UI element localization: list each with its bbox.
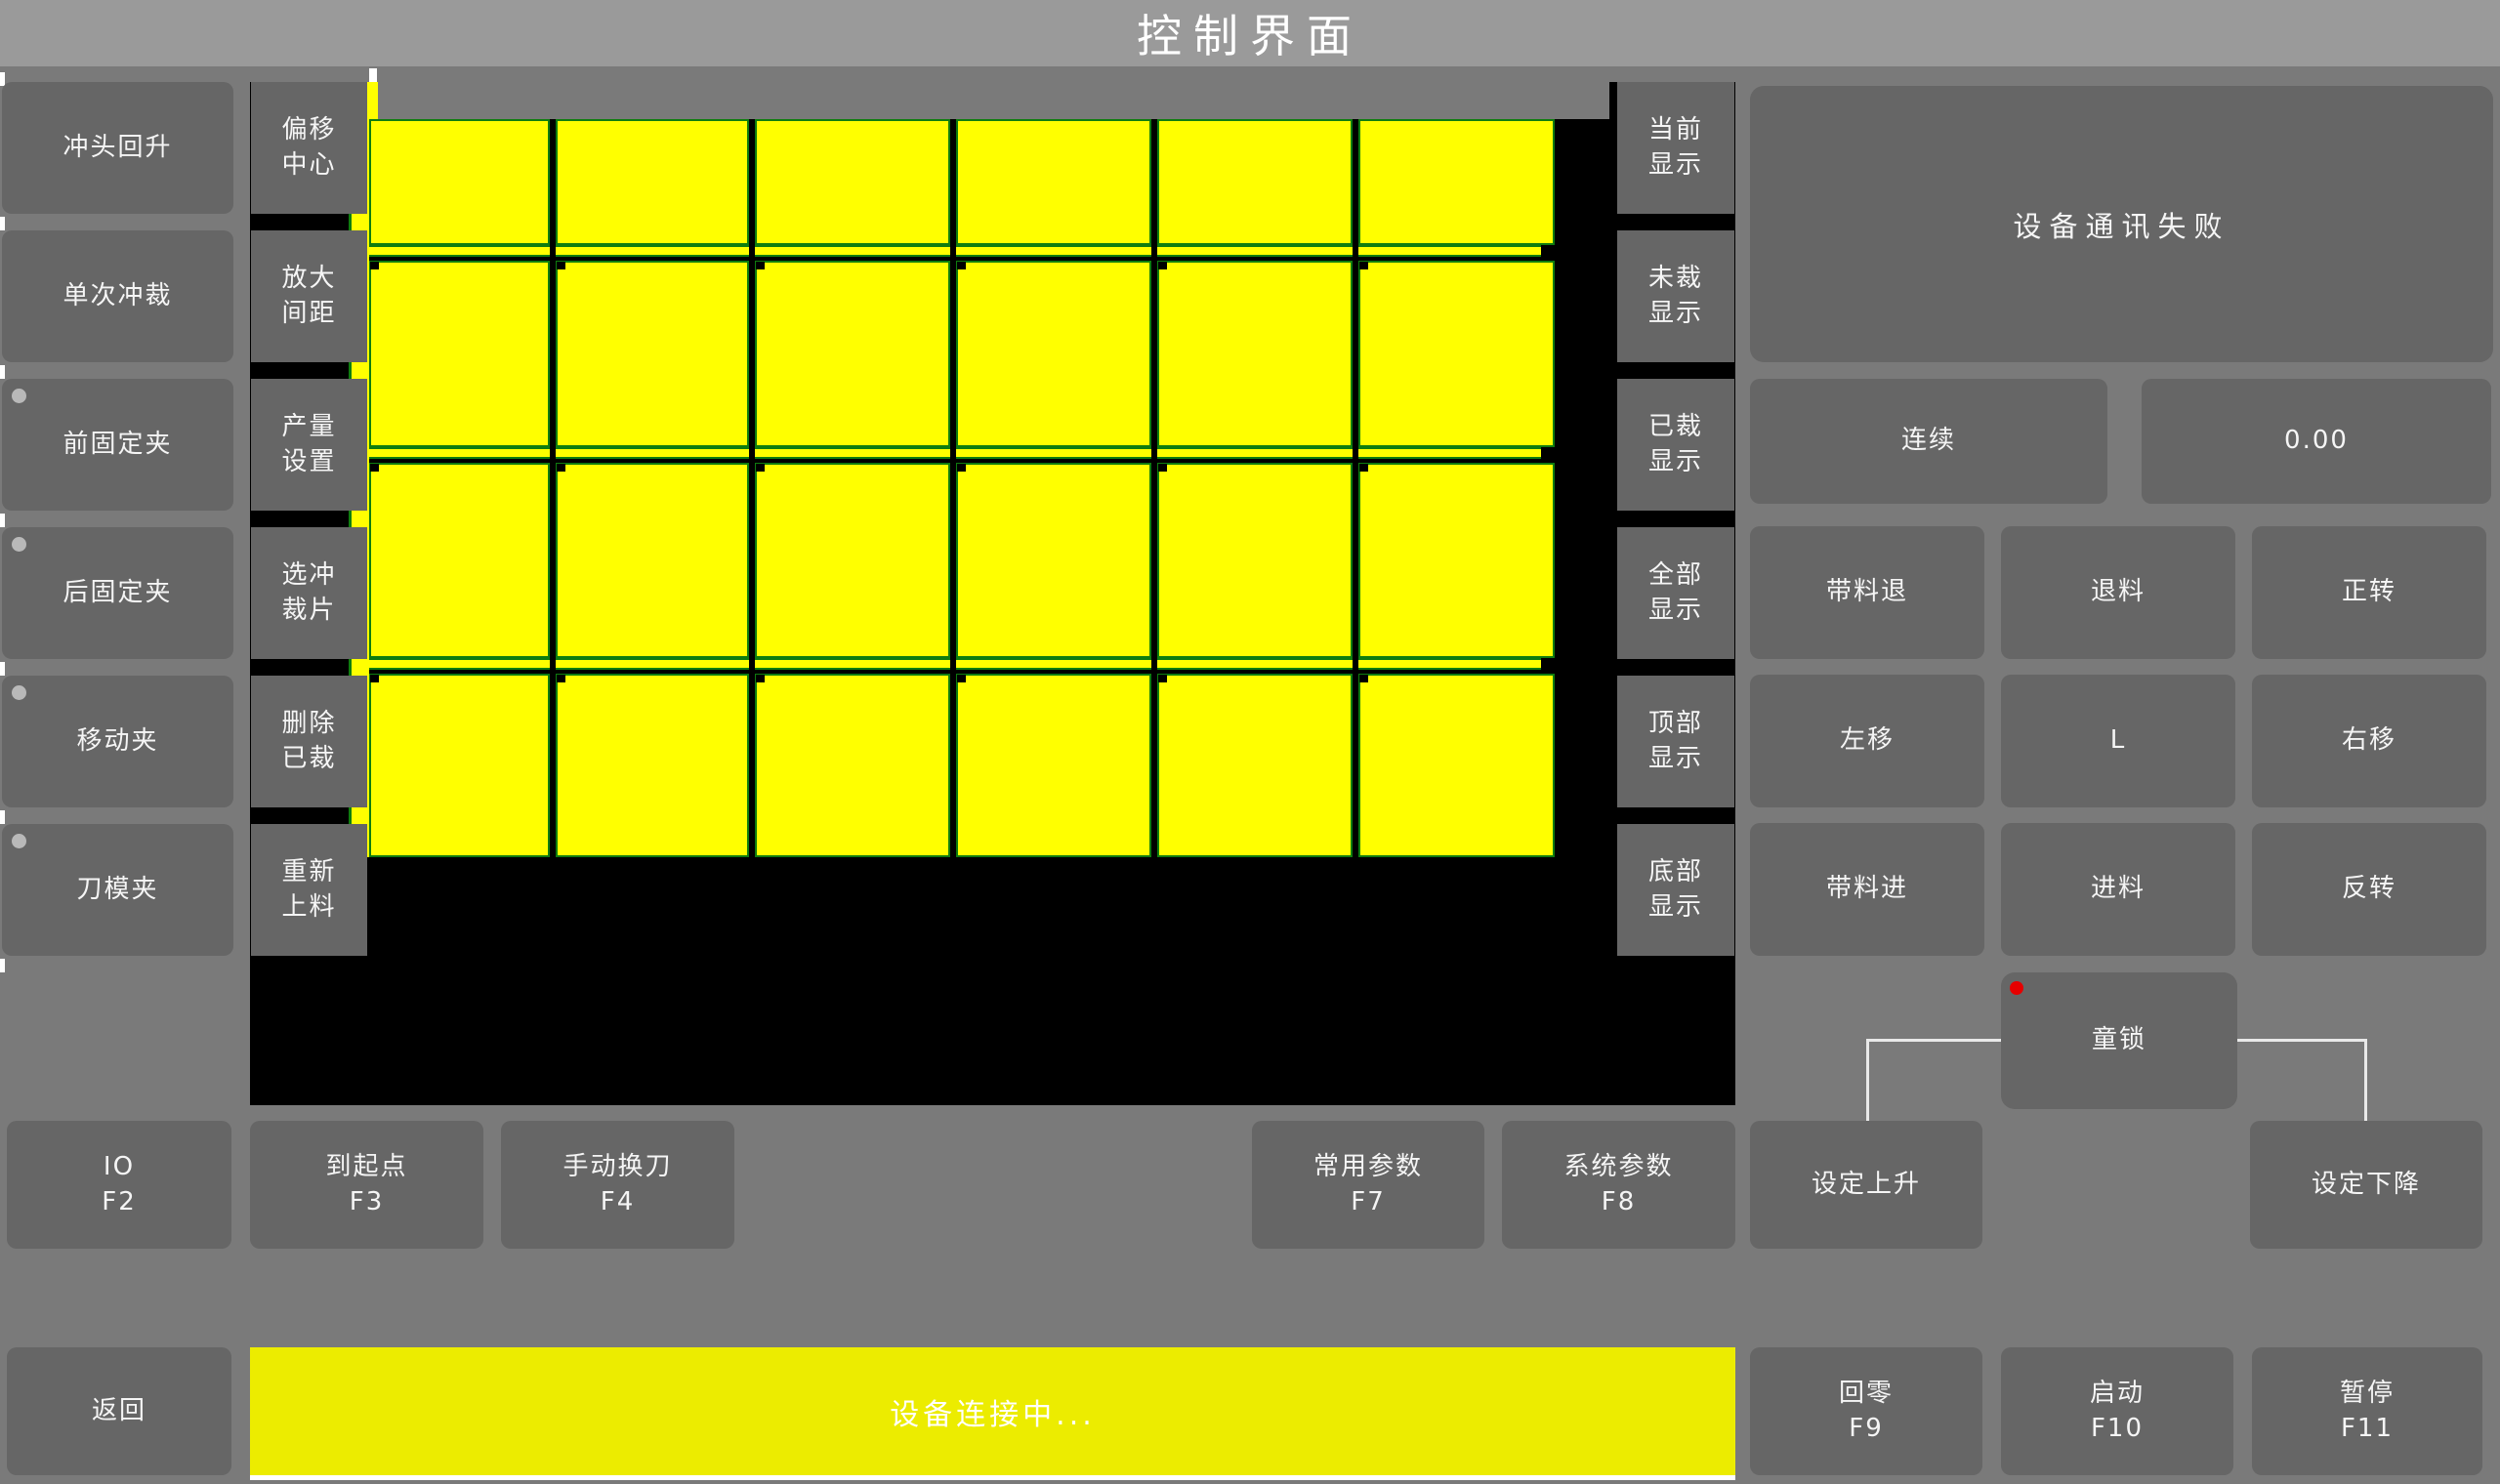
sheet-piece[interactable] <box>369 674 550 857</box>
select-piece-button[interactable]: 选冲 裁片 <box>251 527 367 659</box>
button-label: 间距 <box>281 297 336 331</box>
reverse-rotate-button[interactable]: 反转 <box>2252 823 2486 956</box>
skeleton-band <box>956 447 1151 459</box>
fkey-label: F7 <box>1351 1185 1386 1219</box>
skeleton-band <box>556 447 749 459</box>
button-label: 设定上升 <box>1812 1168 1921 1202</box>
skeleton-band <box>956 245 1151 257</box>
connector-line <box>1866 1039 2001 1042</box>
to-origin-f3-button[interactable]: 到起点 F3 <box>250 1121 483 1249</box>
button-label: 系统参数 <box>1563 1150 1673 1184</box>
button-label: 显示 <box>1648 148 1703 183</box>
skeleton-band <box>755 447 950 459</box>
sheet-piece[interactable] <box>956 674 1151 857</box>
left-edge-tick <box>0 365 5 379</box>
fkey-label: F2 <box>102 1185 137 1219</box>
button-label: 反转 <box>2342 872 2396 906</box>
button-label: 移动夹 <box>76 724 158 759</box>
alarm-message-box: 设备通讯失败 <box>1750 86 2493 362</box>
moving-clamp-button[interactable]: 移动夹 <box>2 676 233 807</box>
button-label: 顶部 <box>1648 707 1703 741</box>
sheet-piece[interactable] <box>755 119 950 245</box>
fkey-label: F3 <box>350 1185 385 1219</box>
sheet-piece[interactable] <box>1358 261 1555 447</box>
button-label: L <box>2110 723 2127 758</box>
left-edge-tick <box>0 514 5 527</box>
continuous-mode-button[interactable]: 连续 <box>1750 379 2107 504</box>
sheet-piece[interactable] <box>1358 674 1555 857</box>
button-label: 显示 <box>1648 742 1703 776</box>
button-label: 回零 <box>1839 1377 1894 1411</box>
button-label: 产量 <box>281 410 336 444</box>
button-label: 后固定夹 <box>62 576 172 610</box>
sheet-piece[interactable] <box>556 261 749 447</box>
sheet-piece[interactable] <box>369 261 550 447</box>
sheet-piece[interactable] <box>755 261 950 447</box>
sheet-piece[interactable] <box>956 119 1151 245</box>
status-indicator-dot <box>12 685 26 700</box>
connection-status-text: 设备连接中... <box>890 1390 1096 1433</box>
button-label: 放大 <box>281 262 336 296</box>
reload-material-button[interactable]: 重新 上料 <box>251 824 367 956</box>
left-edge-tick <box>0 662 5 676</box>
button-label: 当前 <box>1648 113 1703 147</box>
skeleton-band <box>369 658 550 670</box>
l-button[interactable]: L <box>2001 675 2235 807</box>
button-label: 显示 <box>1648 890 1703 925</box>
sheet-piece[interactable] <box>369 119 550 245</box>
front-clamp-button[interactable]: 前固定夹 <box>2 379 233 511</box>
bottom-display-button[interactable]: 底部 显示 <box>1617 824 1734 956</box>
strip-back-button[interactable]: 带料退 <box>1750 526 1984 659</box>
button-label: 退料 <box>2091 575 2146 609</box>
button-label: IO <box>104 1150 135 1184</box>
button-label: 单次冲裁 <box>62 279 172 313</box>
strip-feed-button[interactable]: 带料进 <box>1750 823 1984 956</box>
skeleton-band <box>1358 245 1541 257</box>
button-label: 显示 <box>1648 297 1703 331</box>
skeleton-band <box>1358 658 1541 670</box>
feed-button[interactable]: 进料 <box>2001 823 2235 956</box>
sheet-piece[interactable] <box>556 463 749 658</box>
button-label: 全部 <box>1648 558 1703 593</box>
fkey-label: F9 <box>1849 1412 1884 1446</box>
single-punch-button[interactable]: 单次冲裁 <box>2 230 233 362</box>
button-label: 重新 <box>281 855 336 889</box>
system-params-f8-button[interactable]: 系统参数 F8 <box>1502 1121 1735 1249</box>
sheet-piece[interactable] <box>1157 463 1353 658</box>
skeleton-band <box>1157 447 1353 459</box>
start-f10-button[interactable]: 启动 F10 <box>2001 1347 2233 1475</box>
punch-return-button[interactable]: 冲头回升 <box>2 82 233 214</box>
skeleton-band <box>1157 658 1353 670</box>
button-label: 暂停 <box>2340 1377 2395 1411</box>
pause-f11-button[interactable]: 暂停 F11 <box>2252 1347 2482 1475</box>
connection-status-bar: 设备连接中... <box>250 1347 1735 1475</box>
button-label: 偏移 <box>281 113 336 147</box>
status-indicator-dot <box>12 537 26 552</box>
button-label: 返回 <box>92 1394 146 1428</box>
button-label: 到起点 <box>325 1150 407 1184</box>
skeleton-band <box>1157 245 1353 257</box>
button-label: 已裁 <box>1648 410 1703 444</box>
skeleton-band <box>1358 447 1541 459</box>
button-label: 显示 <box>1648 594 1703 628</box>
button-label: 连续 <box>1901 424 1956 458</box>
alarm-message-text: 设备通讯失败 <box>2013 204 2229 245</box>
fkey-label: F8 <box>1602 1185 1637 1219</box>
sheet-piece[interactable] <box>755 674 950 857</box>
common-params-f7-button[interactable]: 常用参数 F7 <box>1252 1121 1484 1249</box>
button-label: 显示 <box>1648 445 1703 479</box>
button-label: 中心 <box>281 148 336 183</box>
fkey-label: F10 <box>2091 1412 2144 1446</box>
button-label: 带料退 <box>1826 575 1908 609</box>
left-edge-tick <box>0 217 5 230</box>
connector-line <box>1866 1039 1869 1121</box>
set-rise-button[interactable]: 设定上升 <box>1750 1121 1982 1249</box>
delete-cut-button[interactable]: 删除 已裁 <box>251 676 367 807</box>
button-label: 进料 <box>2091 872 2146 906</box>
offset-center-button[interactable]: 偏移 中心 <box>251 82 367 214</box>
sheet-piece[interactable] <box>1157 119 1353 245</box>
status-indicator-dot <box>12 389 26 403</box>
canvas-bottom-region <box>250 857 1735 1105</box>
status-indicator-dot <box>12 834 26 848</box>
button-label: 正转 <box>2342 575 2396 609</box>
sheet-piece[interactable] <box>1358 463 1555 658</box>
button-label: 设置 <box>281 445 336 479</box>
button-label: 设定下降 <box>2312 1168 2421 1202</box>
child-lock-indicator-dot <box>2010 981 2023 995</box>
button-label: 上料 <box>281 890 336 925</box>
sheet-piece[interactable] <box>556 674 749 857</box>
button-label: 选冲 <box>281 558 336 593</box>
button-label: 已裁 <box>281 742 336 776</box>
rear-clamp-button[interactable]: 后固定夹 <box>2 527 233 659</box>
fkey-label: F11 <box>2341 1412 2394 1446</box>
yield-setting-button[interactable]: 产量 设置 <box>251 379 367 511</box>
all-display-button[interactable]: 全部 显示 <box>1617 527 1734 659</box>
io-f2-button[interactable]: IO F2 <box>7 1121 231 1249</box>
button-label: 启动 <box>2090 1377 2145 1411</box>
left-edge-tick <box>0 810 5 824</box>
sheet-piece[interactable] <box>956 261 1151 447</box>
set-descend-button[interactable]: 设定下降 <box>2250 1121 2482 1249</box>
die-clamp-button[interactable]: 刀模夹 <box>2 824 233 956</box>
sheet-piece[interactable] <box>369 463 550 658</box>
button-label: 刀模夹 <box>76 873 158 907</box>
button-label: 裁片 <box>281 594 336 628</box>
button-label: 冲头回升 <box>62 131 172 165</box>
button-label: 常用参数 <box>1313 1150 1423 1184</box>
sheet-top-marker <box>367 82 378 119</box>
connector-line <box>2237 1039 2367 1042</box>
button-label: 童锁 <box>2092 1023 2146 1057</box>
sheet-piece[interactable] <box>956 463 1151 658</box>
top-display-button[interactable]: 顶部 显示 <box>1617 676 1734 807</box>
forward-rotate-button[interactable]: 正转 <box>2252 526 2486 659</box>
button-label: 未裁 <box>1648 262 1703 296</box>
status-bar-underline <box>250 1475 1735 1480</box>
button-label: 底部 <box>1648 855 1703 889</box>
enlarge-spacing-button[interactable]: 放大 间距 <box>251 230 367 362</box>
move-right-button[interactable]: 右移 <box>2252 675 2486 807</box>
child-lock-button[interactable]: 童锁 <box>2001 972 2237 1109</box>
sheet-piece[interactable] <box>1157 674 1353 857</box>
sheet-top-white-tick <box>369 68 377 82</box>
fkey-label: F4 <box>601 1185 636 1219</box>
value-display-box: 0.00 <box>2142 379 2491 504</box>
skeleton-band <box>556 245 749 257</box>
sheet-piece[interactable] <box>1157 261 1353 447</box>
button-label: 删除 <box>281 707 336 741</box>
skeleton-band <box>369 447 550 459</box>
button-label: 带料进 <box>1826 872 1908 906</box>
button-label: 右移 <box>2342 723 2396 758</box>
skeleton-band <box>755 245 950 257</box>
manual-tool-change-f4-button[interactable]: 手动换刀 F4 <box>501 1121 734 1249</box>
current-display-button[interactable]: 当前 显示 <box>1617 82 1734 214</box>
button-label: 手动换刀 <box>562 1150 672 1184</box>
left-edge-tick <box>0 959 5 972</box>
sheet-piece[interactable] <box>755 463 950 658</box>
uncut-display-button[interactable]: 未裁 显示 <box>1617 230 1734 362</box>
canvas-right-gap <box>1560 119 1609 857</box>
sheet-piece[interactable] <box>1358 119 1555 245</box>
cut-display-button[interactable]: 已裁 显示 <box>1617 379 1734 511</box>
button-label: 前固定夹 <box>62 428 172 462</box>
move-left-button[interactable]: 左移 <box>1750 675 1984 807</box>
title-bar: 控制界面 <box>0 0 2500 66</box>
unload-button[interactable]: 退料 <box>2001 526 2235 659</box>
value-text: 0.00 <box>2284 424 2349 458</box>
skeleton-band <box>369 245 550 257</box>
home-f9-button[interactable]: 回零 F9 <box>1750 1347 1982 1475</box>
skeleton-band <box>755 658 950 670</box>
page-title: 控制界面 <box>1137 1 1363 65</box>
skeleton-band <box>556 658 749 670</box>
button-label: 左移 <box>1840 723 1895 758</box>
skeleton-band <box>956 658 1151 670</box>
back-button[interactable]: 返回 <box>7 1347 231 1475</box>
sheet-piece[interactable] <box>556 119 749 245</box>
connector-line <box>2364 1039 2367 1121</box>
